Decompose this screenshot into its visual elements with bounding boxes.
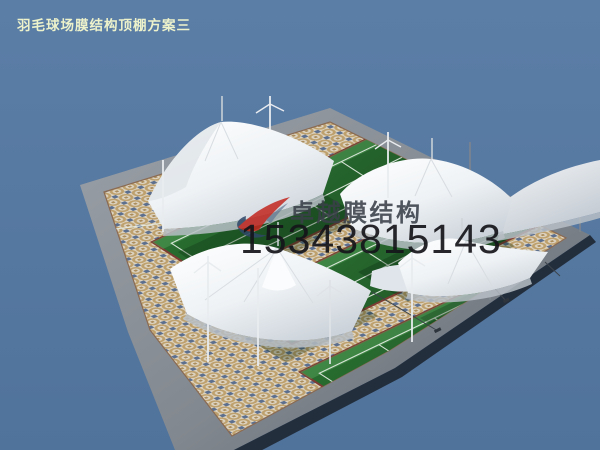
scheme-title: 羽毛球场膜结构顶棚方案三: [17, 17, 191, 33]
watermark-phone-text: 15343815143: [240, 216, 502, 262]
render-viewport: 卓越膜结构 15343815143 羽毛球场膜结构顶棚方案三: [0, 0, 600, 450]
scene-3d-render: 卓越膜结构 15343815143 羽毛球场膜结构顶棚方案三: [0, 0, 600, 450]
